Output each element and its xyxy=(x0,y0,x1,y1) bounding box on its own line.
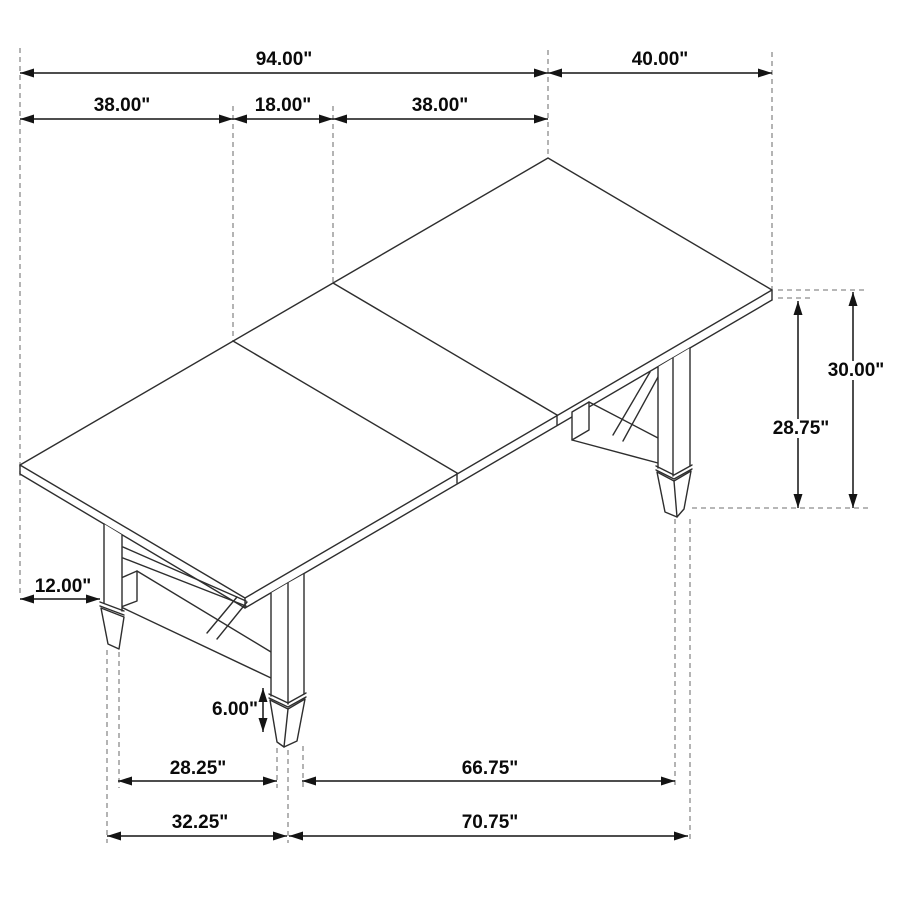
dim-leaf-section-label: 18.00" xyxy=(255,96,312,115)
dim-leg-span-short-outer-label: 32.25" xyxy=(172,813,229,832)
table-drawing xyxy=(20,158,772,747)
dim-extension-width-label: 40.00" xyxy=(632,50,689,69)
front-right-leg xyxy=(656,348,692,517)
dim-leg-span-long-outer-label: 70.75" xyxy=(462,813,519,832)
dim-total-length-label: 94.00" xyxy=(256,50,313,69)
dimension-diagram: 94.00" 40.00" 38.00" 18.00" 38.00" 30.00… xyxy=(0,0,900,900)
dim-overhang-label: 12.00" xyxy=(35,577,92,596)
back-left-leg xyxy=(100,524,124,649)
dim-right-section-label: 38.00" xyxy=(412,96,469,115)
dim-leg-span-long-inner-label: 66.75" xyxy=(462,759,519,778)
dim-height-top-label: 30.00" xyxy=(825,361,888,380)
dim-leg-span-short-inner-label: 28.25" xyxy=(170,759,227,778)
dim-height-underside-label: 28.75" xyxy=(770,419,833,438)
table-line-art xyxy=(0,0,900,900)
dim-foot-height-label: 6.00" xyxy=(212,700,258,719)
dim-left-section-label: 38.00" xyxy=(94,96,151,115)
front-left-leg xyxy=(269,574,306,747)
